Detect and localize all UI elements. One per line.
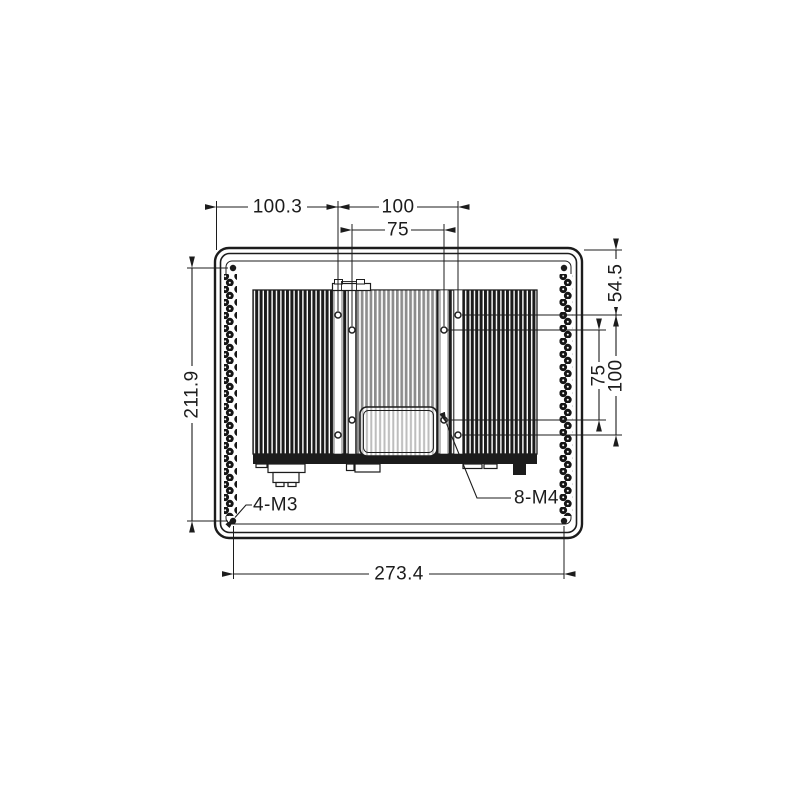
bottom-connectors [256,464,526,487]
connector-tab-left [463,464,482,469]
dim-top-offset-left: 100.3 [253,197,303,218]
right-gasket-strip [560,274,573,516]
corner-screw-top-right [561,265,567,271]
corner-screw-bottom-right [561,518,567,524]
technical-drawing-page: 100.3 100 75 54.5 100 75 211.9 273.4 [0,0,800,800]
left-gasket-strip [224,274,237,516]
corner-screw-bottom-left [230,518,236,524]
bottom-dimension: 273.4 [234,526,565,585]
connector-small [347,464,355,471]
dim-top-edge-to-hole-row: 54.5 [606,264,627,303]
heatsink [253,280,537,487]
connector-medium [355,464,380,472]
rear-view-dimension-drawing: 100.3 100 75 54.5 100 75 211.9 273.4 [0,0,800,800]
ground-stud [513,464,526,475]
dim-screw-spacing-vertical: 211.9 [182,370,203,418]
power-connector [268,464,305,487]
dim-vesa100-width: 100 [382,197,415,218]
dim-vesa75-height: 75 [589,365,610,387]
connector-tab-right [484,464,497,469]
callout-4m3: 4-M3 [235,495,298,518]
corner-screw-top-left [230,265,236,271]
heatsink-foot [256,464,267,468]
label-mounting-holes: 8-M4 [514,488,559,509]
label-corner-screws: 4-M3 [253,495,298,516]
dim-vesa75-width: 75 [387,220,409,241]
dim-screw-spacing-horizontal: 273.4 [374,564,424,585]
vesa-plate [360,407,437,456]
